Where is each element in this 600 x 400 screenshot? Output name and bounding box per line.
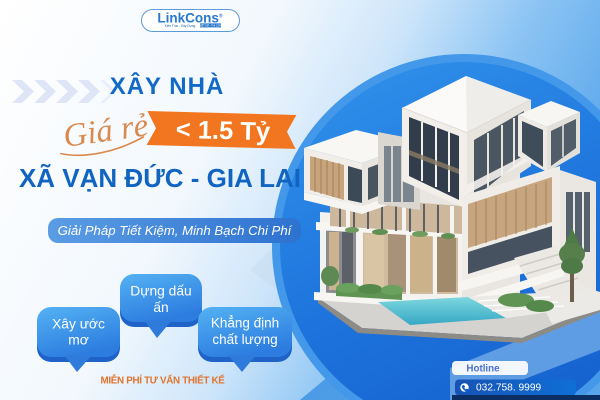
svg-text:< 1.5 Tỷ: < 1.5 Tỷ <box>175 116 271 146</box>
svg-text:Xây ước: Xây ước <box>52 317 105 332</box>
svg-text:Kiến Trúc - Xây Dựng: Kiến Trúc - Xây Dựng <box>165 24 196 28</box>
svg-text:Hotline: Hotline <box>466 364 500 375</box>
svg-text:chất lượng: chất lượng <box>212 332 277 347</box>
svg-text:XÂY NHÀ: XÂY NHÀ <box>110 72 225 100</box>
svg-text:mơ: mơ <box>68 333 89 348</box>
svg-text:XÃ VẠN ĐỨC - GIA LAI: XÃ VẠN ĐỨC - GIA LAI <box>19 163 301 193</box>
svg-text:Khẳng định: Khẳng định <box>211 316 279 331</box>
svg-text:ấn: ấn <box>153 300 168 315</box>
svg-text:Giải Pháp Tiết Kiệm, Minh Bạch: Giải Pháp Tiết Kiệm, Minh Bạch Chi Phí <box>58 223 293 238</box>
svg-text:MIỄN PHÍ TƯ VẤN THIẾT KẾ: MIỄN PHÍ TƯ VẤN THIẾT KẾ <box>101 375 226 387</box>
svg-text:Dựng dấu: Dựng dấu <box>130 284 191 299</box>
svg-text:032.758. 9999: 032.758. 9999 <box>476 383 541 394</box>
